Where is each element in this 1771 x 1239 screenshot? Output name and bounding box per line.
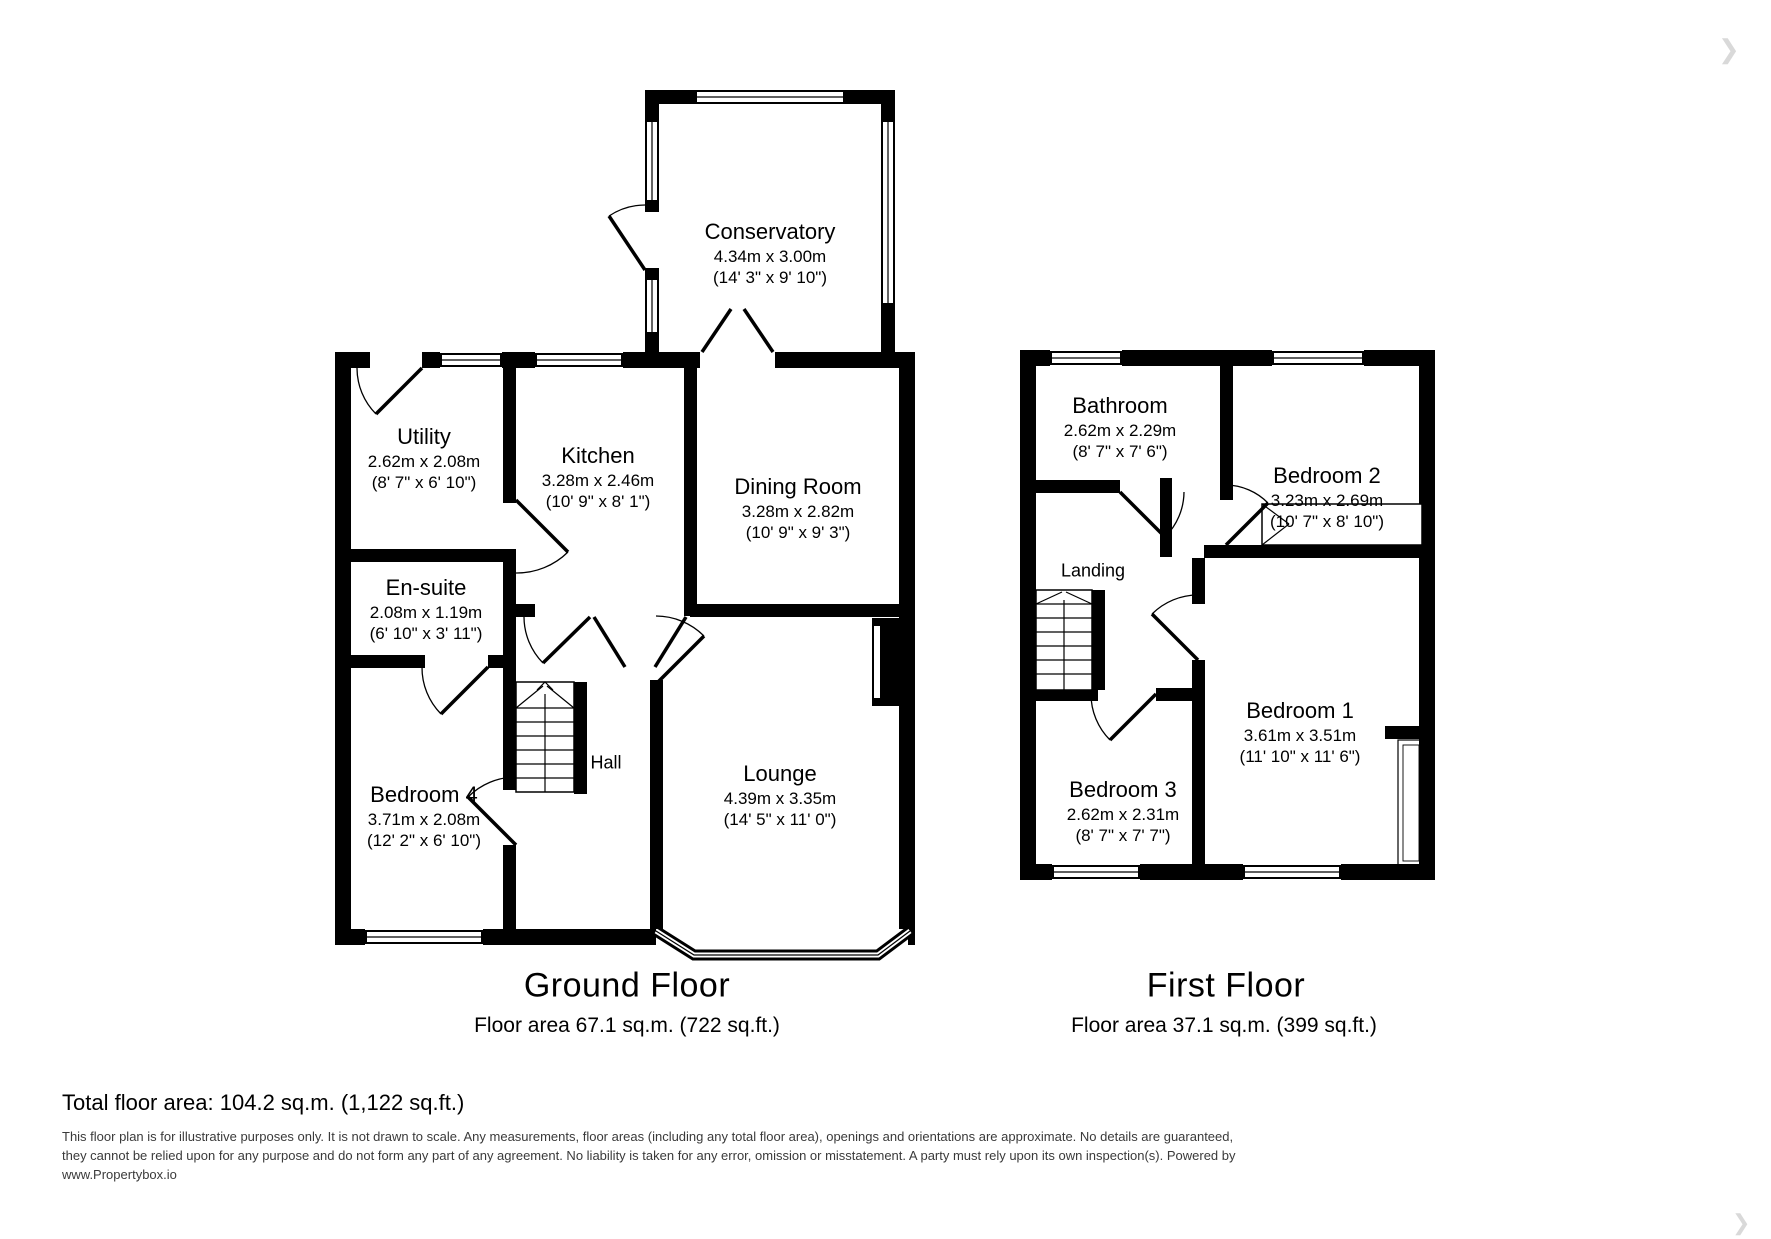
room-name: Lounge xyxy=(724,760,837,788)
door-icon xyxy=(609,205,645,270)
disclaimer-text: This floor plan is for illustrative purp… xyxy=(62,1128,1247,1185)
window-icon xyxy=(645,120,659,334)
room-name: En-suite xyxy=(370,574,483,602)
room-dims-metric: 3.28m x 2.46m xyxy=(542,470,654,491)
room-dims-imperial: (8' 7" x 6' 10") xyxy=(368,472,480,493)
room-name: Bedroom 3 xyxy=(1067,776,1179,804)
room-dims-metric: 3.28m x 2.82m xyxy=(734,501,861,522)
room-dims-imperial: (10' 9" x 9' 3") xyxy=(734,522,861,543)
floorplan-page: Conservatory 4.34m x 3.00m (14' 3" x 9' … xyxy=(0,0,1771,1239)
room-label-hall: Hall xyxy=(590,753,621,774)
room-dims-metric: 4.39m x 3.35m xyxy=(724,788,837,809)
room-dims-metric: 2.62m x 2.31m xyxy=(1067,804,1179,825)
room-label-kitchen: Kitchen 3.28m x 2.46m (10' 9" x 8' 1") xyxy=(542,442,654,512)
floor-plan-canvas xyxy=(0,0,1771,1239)
room-dims-imperial: (6' 10" x 3' 11") xyxy=(370,623,483,644)
first-floor-area: Floor area 37.1 sq.m. (399 sq.ft.) xyxy=(1071,1014,1377,1038)
room-label-bedroom-4: Bedroom 4 3.71m x 2.08m (12' 2" x 6' 10"… xyxy=(367,781,481,851)
room-name: Utility xyxy=(368,423,480,451)
room-dims-metric: 3.61m x 3.51m xyxy=(1240,725,1361,746)
room-dims-metric: 2.62m x 2.29m xyxy=(1064,420,1176,441)
room-name: Conservatory xyxy=(705,218,836,246)
room-name: Bedroom 4 xyxy=(367,781,481,809)
ground-floor-area: Floor area 67.1 sq.m. (722 sq.ft.) xyxy=(474,1014,780,1038)
room-name: Bedroom 2 xyxy=(1270,462,1384,490)
stairs-icon-first xyxy=(1036,590,1092,690)
room-label-landing: Landing xyxy=(1061,561,1125,582)
room-label-bathroom: Bathroom 2.62m x 2.29m (8' 7" x 7' 6") xyxy=(1064,392,1176,462)
ground-floor-title: Ground Floor xyxy=(524,967,730,1006)
room-dims-imperial: (10' 9" x 8' 1") xyxy=(542,491,654,512)
first-floor-title: First Floor xyxy=(1147,967,1306,1006)
window-icon xyxy=(360,929,488,945)
window-icon xyxy=(530,352,628,368)
window-icon xyxy=(1238,864,1346,880)
room-dims-imperial: (14' 5" x 11' 0") xyxy=(724,809,837,830)
carousel-next-icon-bottom[interactable]: ❯ xyxy=(1732,1212,1750,1234)
window-icon xyxy=(1045,350,1127,366)
room-label-dining-room: Dining Room 3.28m x 2.82m (10' 9" x 9' 3… xyxy=(734,473,861,543)
room-dims-imperial: (11' 10" x 11' 6") xyxy=(1240,746,1361,767)
stairs-icon-ground xyxy=(516,682,574,792)
room-name: Bedroom 1 xyxy=(1240,697,1361,725)
room-name: Dining Room xyxy=(734,473,861,501)
room-dims-imperial: (10' 7" x 8' 10") xyxy=(1270,511,1384,532)
room-dims-metric: 2.62m x 2.08m xyxy=(368,451,480,472)
room-dims-imperial: (8' 7" x 7' 7") xyxy=(1067,825,1179,846)
room-label-lounge: Lounge 4.39m x 3.35m (14' 5" x 11' 0") xyxy=(724,760,837,830)
room-name: Kitchen xyxy=(542,442,654,470)
room-label-bedroom-3: Bedroom 3 2.62m x 2.31m (8' 7" x 7' 7") xyxy=(1067,776,1179,846)
room-label-utility: Utility 2.62m x 2.08m (8' 7" x 6' 10") xyxy=(368,423,480,493)
room-name: Bathroom xyxy=(1064,392,1176,420)
window-icon xyxy=(1267,350,1369,366)
room-label-ensuite: En-suite 2.08m x 1.19m (6' 10" x 3' 11") xyxy=(370,574,483,644)
room-dims-metric: 3.23m x 2.69m xyxy=(1270,490,1384,511)
room-dims-metric: 2.08m x 1.19m xyxy=(370,602,483,623)
room-label-conservatory: Conservatory 4.34m x 3.00m (14' 3" x 9' … xyxy=(705,218,836,288)
window-icon xyxy=(881,120,895,305)
window-icon xyxy=(695,90,845,104)
chimney-recess xyxy=(874,626,880,698)
total-floor-area: Total floor area: 104.2 sq.m. (1,122 sq.… xyxy=(62,1090,464,1116)
room-dims-metric: 3.71m x 2.08m xyxy=(367,809,481,830)
room-dims-metric: 4.34m x 3.00m xyxy=(705,246,836,267)
room-dims-imperial: (8' 7" x 7' 6") xyxy=(1064,441,1176,462)
carousel-next-icon[interactable]: ❯ xyxy=(1718,36,1740,62)
room-dims-imperial: (12' 2" x 6' 10") xyxy=(367,830,481,851)
window-icon xyxy=(1047,864,1145,880)
room-dims-imperial: (14' 3" x 9' 10") xyxy=(705,267,836,288)
room-label-bedroom-2: Bedroom 2 3.23m x 2.69m (10' 7" x 8' 10"… xyxy=(1270,462,1384,532)
room-label-bedroom-1: Bedroom 1 3.61m x 3.51m (11' 10" x 11' 6… xyxy=(1240,697,1361,767)
window-icon xyxy=(435,352,507,368)
